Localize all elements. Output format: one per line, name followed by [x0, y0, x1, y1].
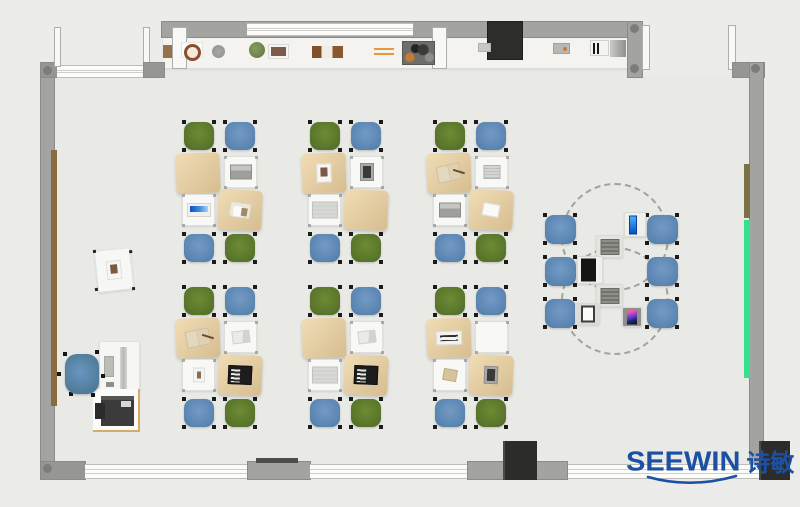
desk-covered: [468, 189, 514, 231]
shelf-item-pencils: [374, 48, 394, 55]
student-chair-blue: [308, 232, 342, 264]
wall-right: [749, 62, 764, 470]
window-bottom-1: [85, 464, 247, 479]
device-phone-color: [627, 310, 637, 325]
desk: [475, 156, 508, 188]
desk: [475, 321, 508, 353]
desk-item-book-tan: [185, 327, 212, 348]
door-brown-strip: [51, 150, 57, 406]
desk: [224, 156, 257, 188]
desk-cluster: [178, 120, 262, 264]
desk-item-paper: [481, 202, 500, 218]
wall-bottom-seg-1: [247, 461, 311, 480]
shelf-item-frame: [268, 44, 289, 59]
window-post: [54, 27, 61, 67]
monitor: [120, 347, 127, 389]
olive-board-strip: [744, 164, 750, 218]
device-laptop-white-pad: [581, 306, 595, 323]
device-pad: [577, 256, 603, 284]
desk-item-book-gray: [312, 202, 338, 219]
desk-item-keyboard-white: [436, 331, 462, 346]
shelf-item-tool-tray: [402, 41, 435, 65]
desk: [433, 359, 466, 391]
student-chair-green: [308, 285, 342, 317]
student-chair-blue: [474, 120, 508, 152]
desk: [308, 359, 341, 391]
desk: [350, 321, 383, 353]
desk-item-stationery: [229, 201, 252, 219]
brand-swoosh-icon: [646, 474, 738, 487]
student-chair-green: [223, 232, 257, 264]
desk-item-photo-small: [193, 368, 205, 383]
desk-cluster: [429, 285, 513, 429]
desk-covered: [343, 189, 389, 231]
device-phone-blue: [629, 215, 637, 234]
shelf-item-shelf-end: [610, 40, 626, 57]
desk-item-notebook: [483, 165, 500, 179]
teacher-chair: [61, 350, 103, 398]
student-chair-blue: [349, 285, 383, 317]
keyboard: [104, 356, 114, 377]
window-top-left: [57, 65, 145, 78]
desk: [224, 321, 257, 353]
desk-cluster: [429, 120, 513, 264]
shelf-item-plate-wreath: [181, 42, 203, 58]
student-chair-green: [349, 232, 383, 264]
collab-chair: [543, 255, 578, 288]
device-laptop-black-pad: [581, 259, 599, 282]
shelf-item-chip: [478, 43, 491, 52]
window-top: [247, 23, 413, 36]
floorplan-canvas: SEEWIN诗敏: [0, 0, 800, 507]
wall-joint: [43, 464, 52, 473]
desk-cluster: [304, 120, 388, 264]
single-student-desk: [94, 247, 134, 293]
desk-item-laptop-gray: [230, 165, 252, 180]
desk: [182, 194, 215, 226]
shelf-item-plate-gray: [212, 45, 225, 58]
student-chair-blue: [433, 232, 467, 264]
shelf-item-books: [312, 46, 343, 58]
desk-covered: [301, 152, 346, 194]
desk-cluster: [178, 285, 262, 429]
wall-display-panel: [487, 21, 523, 60]
desk-covered: [175, 317, 220, 359]
glass-door-post: [642, 25, 650, 70]
printer: [101, 396, 134, 426]
student-chair-blue: [308, 397, 342, 429]
student-chair-green: [433, 285, 467, 317]
student-chair-green: [182, 120, 216, 152]
desk-covered: [468, 354, 514, 396]
desk-covered: [426, 152, 471, 194]
desk-item-paper-folded: [231, 329, 250, 344]
student-chair-green: [433, 120, 467, 152]
device-pad: [575, 303, 600, 325]
structural-column: [503, 441, 537, 480]
collab-chair: [645, 255, 680, 288]
teacher-desk: [99, 341, 140, 394]
desk: [308, 194, 341, 226]
student-chair-blue: [223, 120, 257, 152]
desk-item-booklet: [442, 368, 458, 382]
desk-item-tablet-dark: [360, 163, 374, 181]
desk: [182, 359, 215, 391]
shelf-item-piano: [590, 40, 609, 56]
student-chair-green: [349, 397, 383, 429]
collab-chair: [543, 213, 578, 246]
desk-item-laptop-black: [354, 365, 379, 385]
window-bottom-2: [310, 464, 467, 479]
wall-joint: [630, 24, 639, 33]
desk-item-laptop-gray: [439, 203, 461, 218]
desk-covered: [175, 152, 220, 194]
student-chair-blue: [349, 120, 383, 152]
shelf-item-plant: [249, 42, 265, 58]
student-chair-blue: [433, 397, 467, 429]
desk-item-tablet-dark: [484, 366, 499, 385]
student-chair-blue: [182, 397, 216, 429]
student-chair-green: [474, 397, 508, 429]
window-post: [143, 27, 150, 67]
wall-joint: [630, 64, 639, 73]
brand-logo: SEEWIN诗敏: [626, 443, 794, 479]
student-chair-green: [308, 120, 342, 152]
wall-joint: [43, 66, 52, 75]
wall-block-top-left: [143, 62, 165, 78]
student-chair-blue: [223, 285, 257, 317]
collab-chair: [543, 297, 578, 330]
student-chair-green: [223, 397, 257, 429]
brand-name-cn: 诗敏: [746, 450, 794, 477]
desk-covered: [426, 317, 471, 359]
device-pad: [596, 235, 623, 258]
desk-covered: [343, 354, 389, 396]
student-chair-green: [474, 232, 508, 264]
desk-item-book-gray: [312, 367, 338, 384]
desk-item-laptop-black: [228, 365, 253, 385]
device-pad: [622, 307, 642, 327]
desk-item-photo: [316, 163, 332, 183]
shelf-item-box-brown: [163, 45, 172, 58]
door-lintel: [256, 458, 298, 463]
student-chair-blue: [182, 232, 216, 264]
device-pad: [596, 284, 623, 307]
device-pad: [624, 212, 646, 237]
desk-item-book-tan: [436, 162, 463, 183]
wall-joint: [751, 64, 760, 73]
desk-covered: [217, 189, 263, 231]
mouse: [106, 382, 114, 387]
desk-item-screen-blue: [187, 203, 211, 217]
desk-item-paper-folded: [357, 329, 376, 344]
desk: [350, 156, 383, 188]
student-chair-green: [182, 285, 216, 317]
device-laptop-pad: [600, 288, 619, 304]
exterior-patch: [643, 0, 738, 76]
student-chair-blue: [474, 285, 508, 317]
desk-covered: [301, 317, 346, 359]
desk-cluster: [304, 285, 388, 429]
collab-chair: [645, 213, 680, 246]
desk-covered: [217, 354, 263, 396]
green-board-strip: [744, 220, 750, 378]
collab-chair: [645, 297, 680, 330]
desk: [433, 194, 466, 226]
shelf-item-device-dot: [553, 43, 570, 54]
device-laptop-pad: [600, 239, 619, 255]
desk-item-book: [106, 260, 123, 280]
